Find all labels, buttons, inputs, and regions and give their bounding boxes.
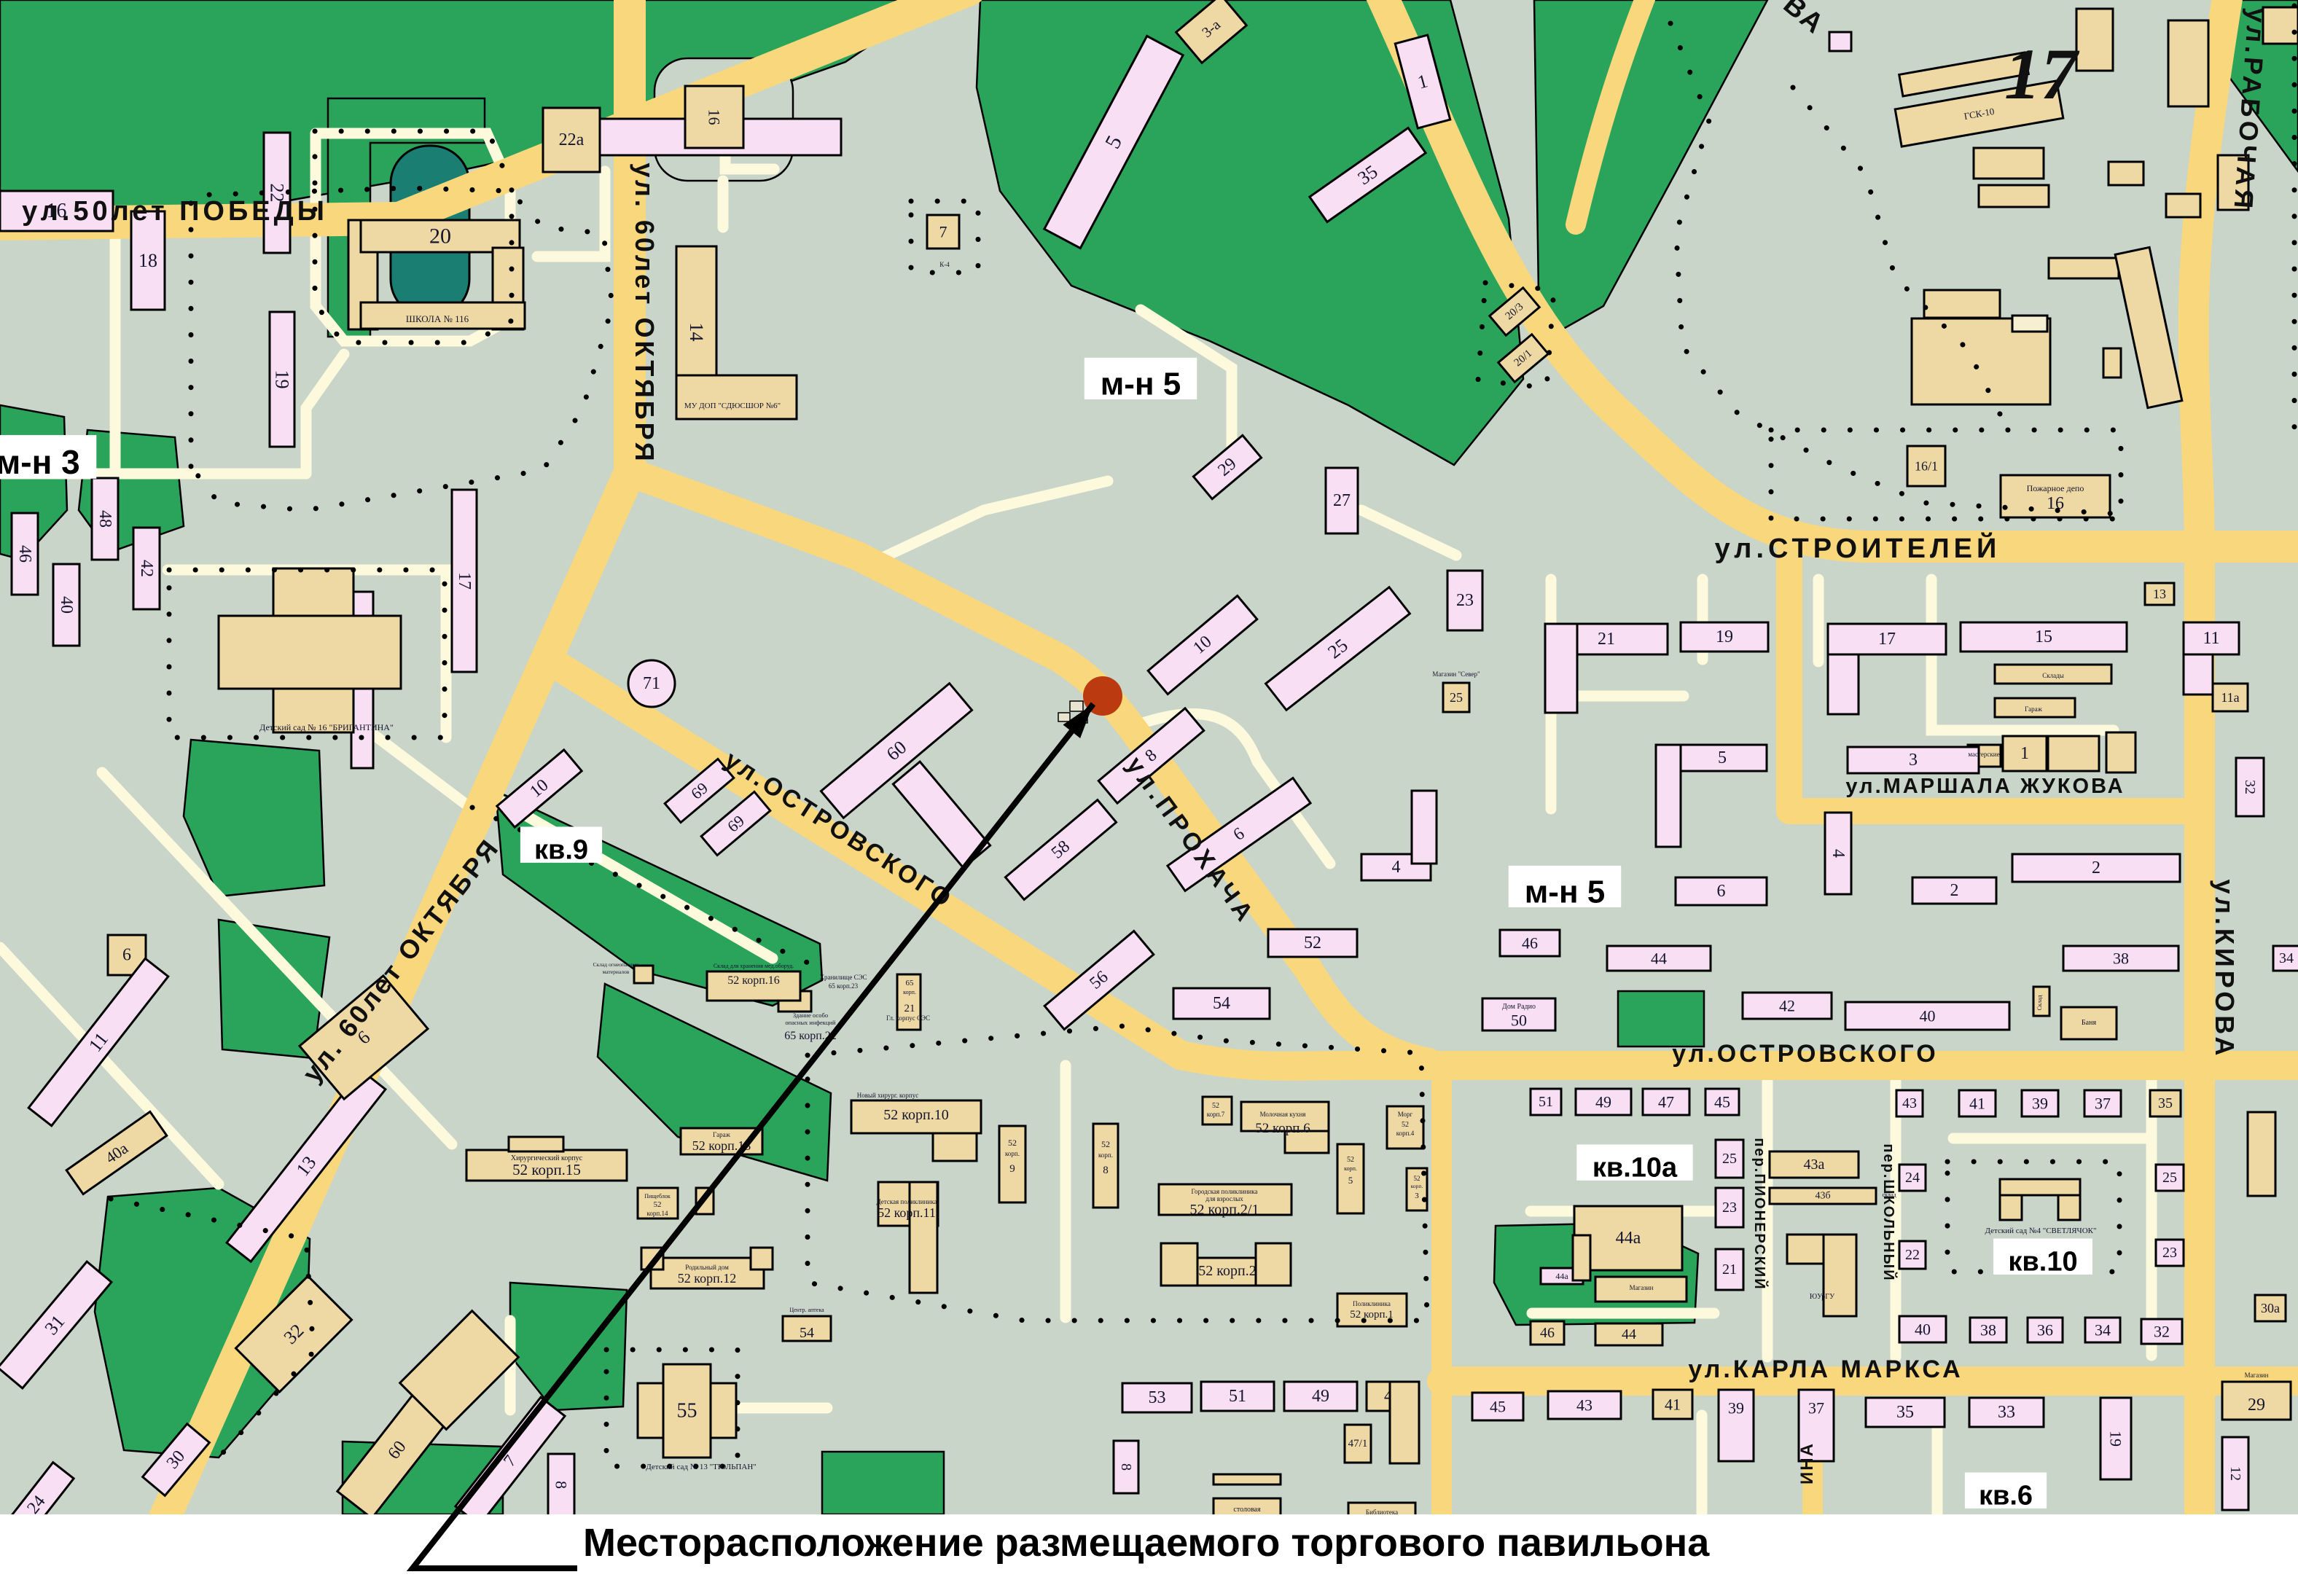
map-caption-text: корп. <box>903 989 916 995</box>
map-caption-text: МУ ДОП "СДЮСШОР №6" <box>684 402 781 410</box>
building-number: 40 <box>1920 1007 1936 1025</box>
building: 17 <box>452 490 477 672</box>
building-number: 38 <box>1980 1321 1996 1339</box>
building-number: 46 <box>15 545 34 563</box>
map-caption-text: 52 корп.1 <box>1350 1309 1394 1321</box>
building-number: 8 <box>552 1481 571 1489</box>
map-caption-text: Центр. аптека <box>789 1307 824 1313</box>
building <box>2103 348 2121 378</box>
building-number: 6 <box>122 946 131 965</box>
building: 41 <box>1653 1390 1692 1419</box>
building: 21 <box>1716 1249 1743 1290</box>
building-number: 23 <box>1722 1200 1737 1216</box>
map-caption-text: Склад <box>2036 995 2043 1011</box>
building: 46 <box>1500 930 1560 956</box>
map-caption-text: Гараж <box>713 1131 730 1138</box>
building-number: 19 <box>2107 1431 2125 1447</box>
building <box>2168 20 2208 106</box>
building <box>1214 1474 1281 1484</box>
building: 6 <box>1676 877 1767 905</box>
building-number: 52 <box>1304 934 1321 952</box>
building: 38 <box>2063 946 2178 971</box>
building-number: 4 <box>1829 849 1848 858</box>
map-caption-text: 52 корп.15 <box>512 1161 581 1178</box>
building <box>2000 1179 2080 1195</box>
map-caption-text: Детская поликлиника <box>877 1198 937 1205</box>
building-number: 41 <box>1665 1396 1681 1414</box>
building <box>1412 791 1437 864</box>
building: 44 <box>1607 946 1711 971</box>
building-number: 23 <box>1456 591 1474 610</box>
building <box>676 375 797 419</box>
building-number: 43б <box>1815 1191 1830 1202</box>
building: 44 <box>1595 1323 1662 1345</box>
building: 47 <box>1643 1089 1689 1115</box>
building-number: 41 <box>1969 1095 1985 1113</box>
building-number: 22а <box>559 130 585 149</box>
building: 3 <box>1848 747 1979 773</box>
building <box>1390 1382 1419 1463</box>
map-caption-text: Молочная кухня <box>1260 1111 1306 1118</box>
district-label: кв.10 <box>2008 1246 2077 1277</box>
building <box>2048 736 2099 771</box>
building: 43 <box>1896 1090 1923 1116</box>
building: 22а <box>543 108 600 172</box>
building-number: 30а <box>2261 1301 2280 1315</box>
building: 32 <box>2236 758 2264 816</box>
building-number: 40 <box>57 596 76 614</box>
street-name: ул.КИРОВА <box>2210 879 2240 1059</box>
building <box>751 1248 773 1270</box>
pavilion-structure <box>1070 701 1083 711</box>
caption-text: Месторасположение размещаемого торгового… <box>583 1521 1710 1565</box>
district-label: м-н 5 <box>1101 367 1181 402</box>
pavilion-structure <box>1058 713 1070 721</box>
building-number: 42 <box>1779 997 1795 1015</box>
building: 16 <box>685 86 743 148</box>
building: 34 <box>2085 1318 2120 1342</box>
building-number: 51 <box>1539 1094 1553 1110</box>
building: 15 <box>1961 622 2127 652</box>
map-caption-text: ЮУрГУ <box>1810 1293 1835 1301</box>
building-number: 34 <box>2095 1321 2111 1339</box>
street-name: ул.МАРШАЛА ЖУКОВА <box>1845 775 2125 798</box>
building <box>1656 745 1681 847</box>
map-caption-text: 52 корп.12 <box>678 1271 736 1286</box>
city-map: 2222а1618221948464240201416151715а610131… <box>0 0 2298 1596</box>
map-caption-text: К-4 <box>939 261 950 268</box>
building-number: 35 <box>1896 1403 1914 1422</box>
map-caption-text: 52 корп.11 <box>878 1205 936 1220</box>
building-number: 21 <box>1722 1261 1737 1278</box>
building-number: 8 <box>1118 1463 1134 1471</box>
map-caption-text: корп. <box>1098 1151 1113 1159</box>
building: 23 <box>1716 1188 1743 1227</box>
building: 1 <box>2003 736 2047 771</box>
building: 29 <box>2222 1382 2291 1420</box>
park-polygon <box>1618 991 1704 1047</box>
building-number: 44 <box>1651 950 1667 968</box>
map-caption-text: Магазин <box>2245 1372 2269 1379</box>
building <box>2058 1195 2080 1220</box>
building <box>1924 290 2000 318</box>
building: 38 <box>1970 1318 2006 1342</box>
map-caption-text: материалов <box>603 969 630 975</box>
building: 11а <box>2213 684 2248 711</box>
building <box>2000 1195 2022 1220</box>
building: 40 <box>53 564 79 646</box>
building <box>509 1137 563 1151</box>
map-caption-text: Здание особо <box>793 1012 828 1019</box>
street-name: пер.ПИОНЕРСКИЙ <box>1751 1138 1769 1290</box>
building <box>2106 732 2135 772</box>
building: 19 <box>1681 622 1768 652</box>
map-caption-text: Хранилище СЭС <box>819 974 867 981</box>
building-number: 44а <box>1555 1271 1568 1281</box>
building-number: 36 <box>2037 1321 2053 1339</box>
map-caption-text: Пожарное депо <box>2027 483 2084 493</box>
map-caption-text: корп. <box>1005 1150 1020 1157</box>
building: 11 <box>2184 622 2239 654</box>
map-caption-text: Детский сад №4 "СВЕТЛЯЧОК" <box>1985 1227 2097 1235</box>
building-number: 34 <box>2279 950 2294 966</box>
building-number: 17 <box>455 572 474 590</box>
map-caption-text: 52 корп.10 <box>883 1107 948 1123</box>
map-caption-text: Склад для хранения мед.оборуд. <box>714 963 794 969</box>
building <box>1828 654 1859 714</box>
map-caption-text: 52 <box>654 1200 662 1209</box>
building-number: 25 <box>2162 1170 2177 1186</box>
building-number: 32 <box>2242 780 2258 794</box>
map-caption-text: корп. <box>1344 1165 1357 1172</box>
building-number: 15 <box>2035 627 2052 646</box>
building-number: 55 <box>677 1400 697 1423</box>
building <box>2012 316 2047 332</box>
map-caption-text: Новый хирург. корпус <box>857 1092 918 1099</box>
building: 8 <box>548 1454 574 1516</box>
map-caption-text: Дом Радио <box>1502 1003 1536 1011</box>
building-number: 19 <box>1716 627 1733 646</box>
building <box>2109 162 2143 185</box>
building-number: 27 <box>1333 491 1351 510</box>
building: 2 <box>1912 877 1996 904</box>
building: 34 <box>2273 946 2298 971</box>
building-number: 13 <box>2153 587 2166 601</box>
map-caption-text: 52 корп.2 <box>1198 1263 1256 1279</box>
building-number: 18 <box>138 250 157 271</box>
building: 51 <box>1201 1382 1274 1411</box>
building: 4 <box>1825 813 1851 894</box>
building: 47/1 <box>1345 1425 1371 1463</box>
building <box>2184 654 2213 695</box>
map-caption-text: 65 <box>906 979 915 987</box>
building-number: 4 <box>1392 858 1401 877</box>
building-number: 3 <box>1909 751 1918 770</box>
building-number: 48 <box>95 510 114 528</box>
map-caption-text: Гараж <box>2025 705 2042 713</box>
building-number: 37 <box>2095 1095 2111 1113</box>
building <box>219 616 401 689</box>
building: 33 <box>1969 1398 2044 1427</box>
building-number: 47 <box>1658 1093 1674 1111</box>
building: 2 <box>2012 854 2180 882</box>
building-number: 11а <box>2221 690 2239 705</box>
building <box>634 966 653 983</box>
map-caption-text: 52 <box>1414 1175 1420 1182</box>
building-number: 33 <box>1998 1403 2015 1422</box>
building: 13 <box>2145 583 2174 605</box>
map-caption-text: 52 корп.16 <box>727 974 780 987</box>
building: 25 <box>1716 1140 1743 1178</box>
building-number: 43а <box>1804 1157 1825 1173</box>
building-number: 16 <box>706 109 724 125</box>
building: 40 <box>1845 1002 2009 1030</box>
map-caption-text: Городская поликлиника <box>1192 1188 1258 1195</box>
building <box>1974 148 2044 179</box>
building: 30а <box>2255 1295 2286 1321</box>
building: 54 <box>783 1316 831 1341</box>
building-number: 25 <box>1450 690 1463 705</box>
district-label: кв.10а <box>1592 1152 1678 1183</box>
map-caption-text: Поликлиника <box>1353 1300 1391 1307</box>
building <box>1829 32 1851 51</box>
building-number: 23 <box>2162 1245 2177 1261</box>
building-number: 29 <box>2248 1396 2265 1415</box>
building: 5 <box>1678 745 1767 771</box>
building: 46 <box>1531 1321 1564 1345</box>
map-caption-text: 52 <box>1101 1139 1110 1149</box>
building: 71 <box>628 660 675 707</box>
building: 25 <box>2156 1165 2184 1191</box>
map-caption-text: корп. <box>1411 1183 1423 1189</box>
building-number: 20 <box>429 224 451 249</box>
map-caption-text: Баня <box>2082 1019 2097 1027</box>
map-caption-text: корп.14 <box>647 1210 668 1217</box>
map-caption-text: 3 <box>1415 1192 1419 1200</box>
map-caption-text: Склады <box>2042 672 2064 679</box>
building: 32 <box>2141 1319 2182 1344</box>
building-number: 2 <box>2092 858 2100 877</box>
map-caption-text: 65 корп.23 <box>829 982 859 990</box>
building-number: 40 <box>1915 1321 1931 1339</box>
building: 23 <box>2156 1240 2184 1266</box>
map-caption-text: 52 корп.6 <box>1255 1121 1310 1136</box>
map-screenshot: 2222а1618221948464240201416151715а610131… <box>0 0 2298 1596</box>
street-name: ул.КАРЛА МАРКСА <box>1688 1356 1963 1383</box>
building: 45 <box>1472 1393 1523 1420</box>
map-caption-text: 21 <box>904 1003 915 1014</box>
building: 37 <box>2084 1090 2121 1116</box>
building: 39 <box>1719 1390 1754 1461</box>
building-number: 25 <box>1722 1151 1737 1167</box>
building-number: 39 <box>1728 1399 1744 1417</box>
building <box>2166 194 2200 217</box>
building-number: 53 <box>1149 1388 1166 1407</box>
building-number: 17 <box>1878 630 1896 649</box>
district-label: кв.9 <box>534 834 588 865</box>
building: 25 <box>1443 683 1469 712</box>
building-number: 7 <box>939 223 947 241</box>
building <box>933 1133 977 1161</box>
building: 19 <box>2100 1398 2131 1479</box>
building <box>2248 1112 2275 1196</box>
building: 12 <box>2222 1437 2248 1510</box>
map-caption-text: 8 <box>1103 1165 1109 1176</box>
building <box>1256 1243 1291 1286</box>
street-name: ул.СТРОИТЕЛЕЙ <box>1715 531 2001 564</box>
building: 54 <box>1173 988 1270 1019</box>
building: 35 <box>1866 1398 1945 1427</box>
building-number: 47/1 <box>1348 1438 1368 1450</box>
building-number: 14 <box>686 323 707 342</box>
map-caption-text: Детский сад № 13 "ТЮЛЬПАН" <box>646 1463 757 1471</box>
building: 7 <box>927 215 959 249</box>
building-number: 19 <box>272 370 293 389</box>
building <box>2076 9 2113 71</box>
building-number: 43 <box>1902 1095 1917 1111</box>
building: 39 <box>2022 1090 2058 1116</box>
building: 40 <box>1899 1316 1946 1342</box>
building-number: 11 <box>2203 629 2219 648</box>
building <box>1824 1235 1856 1316</box>
building-number: 22 <box>1905 1247 1920 1263</box>
building-number: 39 <box>2032 1095 2048 1113</box>
building-number: 46 <box>1522 934 1538 952</box>
building: 43б <box>1770 1188 1876 1204</box>
map-caption-text: 52 <box>1402 1121 1409 1129</box>
building: 24 <box>1899 1165 1926 1191</box>
map-caption-text: Гл. корпус СЭС <box>886 1014 930 1022</box>
building: 36 <box>2028 1318 2063 1342</box>
building-number: 54 <box>800 1325 814 1341</box>
building <box>2049 258 2119 278</box>
building <box>1545 624 1577 713</box>
building: 41 <box>1959 1090 1996 1116</box>
building: 53 <box>1122 1383 1192 1412</box>
building-number: 42 <box>137 560 156 577</box>
map-caption-text: 52 корп.2/1 <box>1190 1202 1259 1218</box>
building-number: 43 <box>1576 1396 1592 1415</box>
building-number: 38 <box>2113 950 2129 968</box>
map-caption-text: 52 <box>1212 1102 1219 1110</box>
building-number: 35 <box>2158 1095 2173 1111</box>
building <box>1161 1243 1197 1286</box>
building-number: 44 <box>1622 1326 1636 1342</box>
quarter-number: 17 <box>2004 34 2080 114</box>
map-caption-text: мастерские <box>1968 751 1999 758</box>
building-number: 24 <box>1905 1170 1920 1186</box>
building: 45 <box>1705 1089 1739 1115</box>
map-caption-text: 52 <box>1008 1138 1017 1148</box>
building-number: 46 <box>1540 1325 1555 1341</box>
map-caption-text: Родильный дом <box>685 1264 729 1271</box>
map-caption-text: ШКОЛА № 116 <box>406 313 469 324</box>
building <box>1979 185 2049 207</box>
map-caption-text: 52 <box>1347 1156 1354 1164</box>
building: 8 <box>1114 1441 1138 1493</box>
building: 48 <box>92 478 118 560</box>
building: 49 <box>1576 1089 1631 1115</box>
building-number: 44а <box>1616 1229 1641 1248</box>
building-number: 5 <box>1718 748 1727 767</box>
map-caption-text: Пищеблок <box>644 1193 671 1200</box>
building: 49 <box>1284 1382 1357 1411</box>
map-caption-text: Склад огнеопасных <box>593 961 639 968</box>
building: 43 <box>1548 1391 1621 1419</box>
street-name: пер.ШКОЛЬНЫЙ <box>1880 1143 1898 1281</box>
building-number: 54 <box>1213 994 1230 1013</box>
building-number: 49 <box>1312 1387 1329 1406</box>
building: 19 <box>270 312 294 447</box>
building-number: 2 <box>1950 881 1959 900</box>
building: 43а <box>1770 1151 1859 1178</box>
building-number: 51 <box>1229 1387 1246 1406</box>
street-name: ул.ОСТРОВСКОГО <box>1672 1040 1938 1068</box>
map-caption-text: Магазин "Север" <box>1432 670 1480 678</box>
building-number: 45 <box>1714 1093 1730 1111</box>
street-name: ул.50лет ПОБЕДЫ <box>22 196 328 227</box>
building-number: 6 <box>1717 882 1726 901</box>
building: 35 <box>2150 1090 2181 1116</box>
building <box>1573 1235 1590 1280</box>
building: 42 <box>133 528 160 609</box>
map-caption-text: Детский сад № 16 "БРИГАНТИНА" <box>259 722 394 732</box>
building: 23 <box>1447 571 1482 630</box>
map-caption-text: опасных инфекций <box>785 1019 836 1026</box>
map-caption-text: 5 <box>1348 1175 1353 1186</box>
map-caption-text: корп.7 <box>1207 1111 1225 1118</box>
district-label: м-н 3 <box>0 443 80 481</box>
building-number: 50 <box>1511 1012 1527 1030</box>
building-number: 45 <box>1490 1398 1506 1416</box>
building-number: 71 <box>643 674 660 693</box>
building: 55 <box>663 1364 711 1458</box>
building-number: 49 <box>1595 1093 1611 1111</box>
map-caption-text: корп.4 <box>1396 1130 1415 1137</box>
park-polygon <box>822 1452 944 1514</box>
building-number: 32 <box>2154 1323 2170 1341</box>
building-number: 21 <box>1598 630 1615 649</box>
map-caption-text: Магазин <box>1630 1284 1654 1291</box>
building: 51 <box>1531 1089 1561 1115</box>
building: 46 <box>12 513 38 595</box>
building-number: 12 <box>2227 1466 2243 1481</box>
map-caption-text: столовая <box>1233 1506 1261 1514</box>
building: 42 <box>1743 993 1832 1019</box>
building-number: 1 <box>2020 744 2029 763</box>
building-number: 37 <box>1808 1399 1824 1417</box>
building: 22 <box>1899 1241 1926 1269</box>
street-name: ул. 60лет ОКТЯБРЯ <box>630 163 660 463</box>
building: 52 <box>1268 929 1357 957</box>
building-number: 16/1 <box>1915 459 1938 474</box>
building: 17 <box>1828 624 1946 654</box>
street-name: ИНА <box>1797 1442 1817 1484</box>
map-caption-text: Морг <box>1398 1111 1413 1118</box>
map-caption-text: 9 <box>1009 1163 1015 1175</box>
district-label: кв.6 <box>1979 1480 2033 1511</box>
district-label: м-н 5 <box>1525 875 1605 910</box>
building: 27 <box>1326 468 1358 533</box>
building: 16/1 <box>1907 446 1945 486</box>
